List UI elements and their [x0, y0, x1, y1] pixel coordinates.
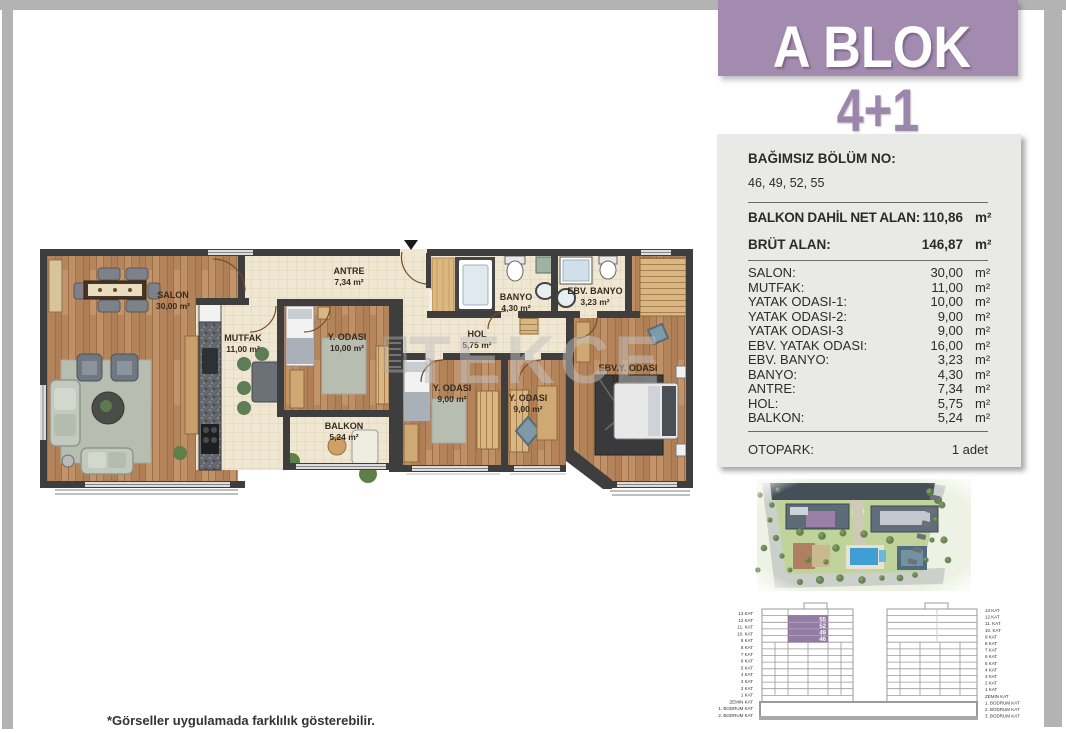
svg-text:9 KAT: 9 KAT — [985, 634, 997, 639]
svg-text:1. BODRUM KAT: 1. BODRUM KAT — [985, 700, 1020, 705]
svg-text:46: 46 — [819, 637, 826, 643]
svg-text:2. BODRUM KAT: 2. BODRUM KAT — [985, 707, 1020, 712]
svg-text:ZEMIN KAT: ZEMIN KAT — [729, 699, 753, 704]
svg-text:11. KAT: 11. KAT — [985, 621, 1001, 626]
svg-text:7 KAT: 7 KAT — [741, 652, 753, 657]
svg-text:7,34 m²: 7,34 m² — [334, 277, 363, 287]
svg-text:4,30 m²: 4,30 m² — [501, 303, 530, 313]
svg-text:10. KAT: 10. KAT — [737, 631, 753, 636]
svg-text:BANYO: BANYO — [500, 292, 533, 302]
svg-text:MUTFAK: MUTFAK — [224, 333, 262, 343]
svg-text:12 KAT: 12 KAT — [738, 618, 753, 623]
svg-text:9 KAT: 9 KAT — [741, 638, 753, 643]
svg-text:5,24 m²: 5,24 m² — [329, 432, 358, 442]
svg-text:9,00 m²: 9,00 m² — [513, 404, 542, 414]
svg-text:3. BODRUM KAT: 3. BODRUM KAT — [985, 714, 1020, 719]
svg-text:2 KAT: 2 KAT — [741, 686, 753, 691]
svg-text:Y. ODASI: Y. ODASI — [328, 332, 367, 342]
svg-text:11. KAT: 11. KAT — [737, 625, 753, 630]
svg-text:7 KAT: 7 KAT — [985, 648, 997, 653]
svg-text:1 KAT: 1 KAT — [741, 693, 753, 698]
svg-text:52: 52 — [819, 624, 826, 630]
svg-text:10,00 m²: 10,00 m² — [330, 343, 364, 353]
svg-text:55: 55 — [819, 617, 826, 623]
svg-text:TEKCE: TEKCE — [409, 322, 664, 398]
svg-text:8 KAT: 8 KAT — [985, 641, 997, 646]
svg-text:13 KAT: 13 KAT — [985, 608, 1000, 613]
svg-text:12 KAT: 12 KAT — [985, 615, 1000, 620]
svg-text:13 KAT: 13 KAT — [738, 611, 753, 616]
svg-text:ZEMIN KAT: ZEMIN KAT — [985, 694, 1009, 699]
svg-text:2 KAT: 2 KAT — [985, 681, 997, 686]
svg-text:1 KAT: 1 KAT — [985, 687, 997, 692]
svg-text:3 KAT: 3 KAT — [985, 674, 997, 679]
svg-text:SALON: SALON — [157, 290, 189, 300]
svg-text:2. BODRUM KAT: 2. BODRUM KAT — [718, 713, 753, 718]
svg-text:BALKON: BALKON — [325, 421, 364, 431]
svg-text:5 KAT: 5 KAT — [985, 661, 997, 666]
svg-text:3 KAT: 3 KAT — [741, 679, 753, 684]
svg-text:11,00 m²: 11,00 m² — [226, 344, 260, 354]
svg-text:4 KAT: 4 KAT — [741, 672, 753, 677]
svg-text:ANTRE: ANTRE — [334, 266, 365, 276]
svg-text:4 KAT: 4 KAT — [985, 667, 997, 672]
svg-text:5 KAT: 5 KAT — [741, 665, 753, 670]
svg-text:6 KAT: 6 KAT — [985, 654, 997, 659]
svg-text:1. BODRUM KAT: 1. BODRUM KAT — [718, 706, 753, 711]
svg-text:10. KAT: 10. KAT — [985, 628, 1001, 633]
svg-text:49: 49 — [819, 631, 826, 637]
svg-text:6 KAT: 6 KAT — [741, 659, 753, 664]
svg-text:3,23 m²: 3,23 m² — [580, 297, 609, 307]
svg-text:8 KAT: 8 KAT — [741, 645, 753, 650]
svg-text:EBV. BANYO: EBV. BANYO — [567, 286, 622, 296]
svg-text:30,00 m²: 30,00 m² — [156, 301, 190, 311]
